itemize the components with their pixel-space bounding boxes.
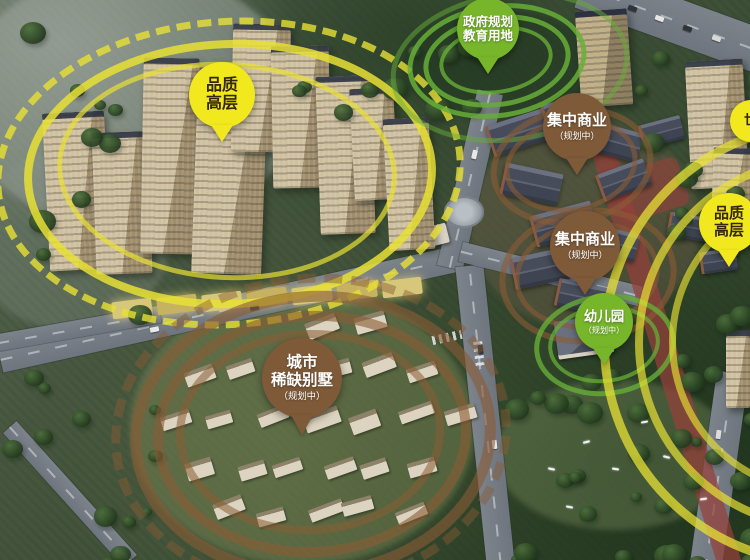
tree <box>34 429 52 445</box>
tree <box>630 492 642 502</box>
marker-label: 集中商业 <box>547 113 607 130</box>
tree <box>654 498 673 515</box>
marker-edge-partial: 世 <box>730 100 750 142</box>
marker-label: 政府规划 <box>463 15 513 29</box>
pin-balloon: 城市 稀缺别墅 （规划中） <box>262 338 342 418</box>
marker-label: 高层 <box>206 95 238 113</box>
tree <box>29 210 55 232</box>
pin-tail-icon <box>211 125 233 142</box>
tree <box>544 393 569 414</box>
pin-balloon: 政府规划 教育用地 <box>457 0 519 60</box>
tree <box>408 46 421 57</box>
tree <box>683 162 702 178</box>
pin-balloon: 集中商业 （规划中） <box>543 93 611 161</box>
tree <box>688 556 707 560</box>
tree <box>652 51 670 66</box>
tree <box>741 554 750 560</box>
marker-label: 世 <box>744 113 750 129</box>
marker-label: 集中商业 <box>555 232 615 249</box>
pin-balloon: 品质 高层 <box>699 193 750 253</box>
tree <box>122 516 136 528</box>
marker-villa: 城市 稀缺别墅 （规划中） <box>262 338 342 435</box>
tree <box>514 543 537 560</box>
tree <box>662 544 686 560</box>
tree <box>628 444 650 463</box>
tree <box>20 22 46 44</box>
marker-sublabel: （规划中） <box>562 250 607 260</box>
tree <box>671 429 693 448</box>
tree <box>70 84 85 97</box>
tree <box>108 104 123 116</box>
tree <box>38 383 51 394</box>
car <box>492 440 498 449</box>
pin-balloon: 集中商业 （规划中） <box>550 211 620 281</box>
tree <box>641 133 664 153</box>
marker-label: 教育用地 <box>463 29 513 43</box>
car <box>478 345 484 354</box>
marker-commercial-south: 集中商业 （规划中） <box>550 211 620 295</box>
pin-tail-icon <box>593 348 615 365</box>
tree <box>94 506 118 526</box>
tree <box>667 224 687 241</box>
pin-tail-icon <box>718 250 740 267</box>
pin-tail-icon <box>477 57 499 74</box>
pin-tail-icon <box>291 415 313 435</box>
marker-label: 稀缺别墅 <box>271 372 333 389</box>
tree <box>292 85 306 97</box>
tree <box>148 450 163 463</box>
tree <box>740 528 750 549</box>
marker-kindergarten: 幼儿园 （规划中） <box>575 293 633 365</box>
tree <box>675 207 689 219</box>
pin-balloon: 幼儿园 （规划中） <box>575 293 633 351</box>
aerial-masterplan-image: 品质 高层 政府规划 教育用地 集中商业 （规划中） 集中商业 （规划中） 品质 <box>0 0 750 560</box>
tree <box>361 82 379 98</box>
pin-balloon: 品质 高层 <box>189 62 255 128</box>
tree <box>149 405 161 416</box>
tree <box>744 413 750 426</box>
marker-label: 品质 <box>206 77 238 95</box>
tree <box>72 191 92 208</box>
forest-trees-group <box>0 0 750 560</box>
marker-quality-highrise-nw: 品质 高层 <box>189 62 255 142</box>
tree <box>579 506 598 522</box>
tree <box>615 550 632 560</box>
marker-sublabel: （规划中） <box>279 391 326 401</box>
tree <box>569 472 582 483</box>
pin-balloon: 世 <box>730 100 750 142</box>
tree <box>425 98 451 120</box>
tree <box>635 85 648 96</box>
marker-label: 城市 <box>286 354 317 371</box>
tree <box>691 437 702 447</box>
tree <box>36 248 51 261</box>
marker-sublabel: （规划中） <box>554 131 599 141</box>
tree <box>72 411 91 428</box>
tree <box>462 99 482 116</box>
tree <box>704 366 723 382</box>
tree <box>438 45 458 62</box>
marker-sublabel: （规划中） <box>584 326 624 335</box>
marker-label: 幼儿园 <box>584 309 625 324</box>
tree <box>683 473 704 491</box>
tree <box>674 354 691 369</box>
tree <box>730 472 750 490</box>
tree <box>577 402 603 424</box>
tree <box>128 305 152 325</box>
marker-quality-highrise-east: 品质 高层 <box>699 193 750 267</box>
tree <box>705 449 724 466</box>
tree <box>142 508 152 517</box>
tree <box>81 128 103 147</box>
marker-label: 品质 <box>714 206 744 223</box>
tree <box>603 369 619 383</box>
tree <box>110 546 130 560</box>
tree <box>2 440 23 458</box>
tree <box>505 399 529 419</box>
tree <box>334 104 353 120</box>
tree <box>382 78 408 100</box>
tree <box>530 391 546 405</box>
marker-label: 高层 <box>714 223 744 240</box>
pin-tail-icon <box>566 158 588 175</box>
marker-gov-education: 政府规划 教育用地 <box>457 0 519 74</box>
marker-commercial-north: 集中商业 （规划中） <box>543 93 611 175</box>
tree <box>680 372 704 392</box>
tree <box>94 100 106 111</box>
tree <box>730 306 750 326</box>
tree <box>581 374 602 392</box>
